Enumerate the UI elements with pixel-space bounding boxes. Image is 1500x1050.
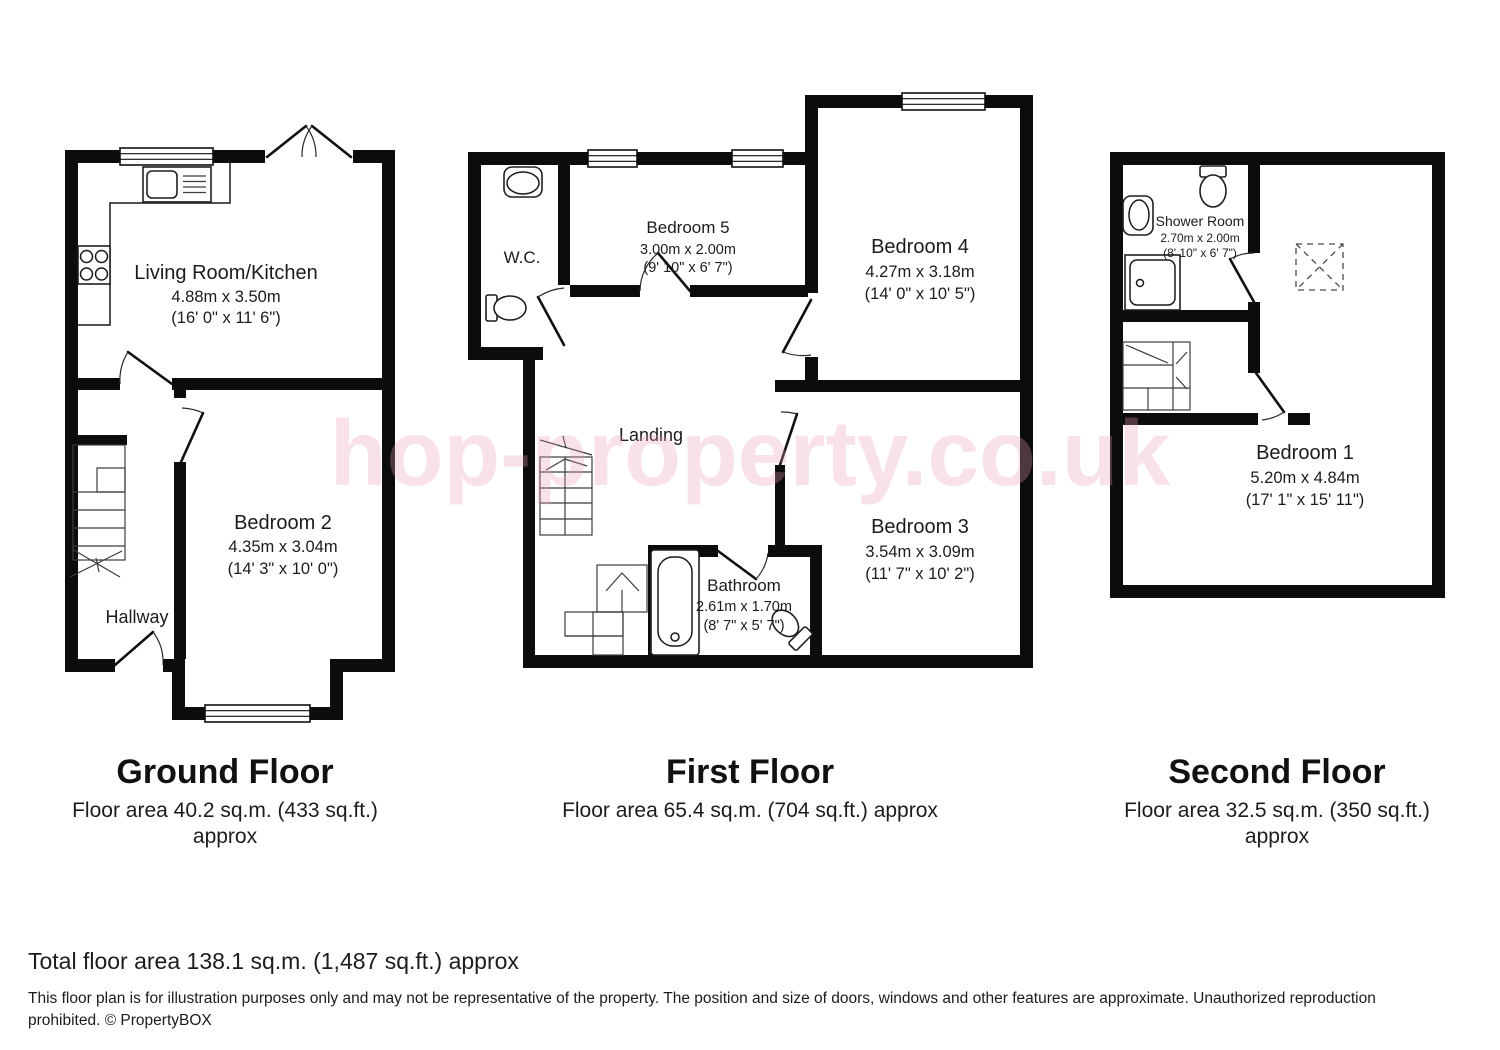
room-dims-metric: 4.88m x 3.50m: [171, 288, 280, 306]
room-label-bathroom: Bathroom: [707, 576, 781, 595]
toilet-icon: [486, 295, 526, 321]
room-dims-imperial: (16' 0" x 11' 6"): [171, 309, 280, 327]
first-floor-caption: First Floor Floor area 65.4 sq.m. (704 s…: [450, 753, 1050, 824]
door-icon: [783, 300, 811, 356]
door-icon: [120, 352, 172, 384]
skylight-icon: [1296, 244, 1343, 290]
sink-icon: [504, 167, 542, 197]
room-label-shower-room: Shower Room: [1156, 213, 1245, 229]
room-dims-metric: 4.35m x 3.04m: [228, 538, 337, 556]
floor-title-second: Second Floor: [1077, 753, 1477, 792]
window-icon: [588, 150, 637, 167]
room-dims-imperial: (17' 1" x 15' 11"): [1246, 491, 1365, 509]
french-door-icon: [267, 126, 351, 157]
floor-area-first: Floor area 65.4 sq.m. (704 sq.ft.) appro…: [450, 798, 1050, 824]
floor-area-ground-approx: approx: [25, 824, 425, 850]
shower-tray-icon: [1125, 255, 1180, 310]
room-dims-metric: 5.20m x 4.84m: [1250, 469, 1359, 487]
floorplan-drawing: Living Room/Kitchen 4.88m x 3.50m (16' 0…: [0, 0, 1500, 750]
room-dims-metric: 4.27m x 3.18m: [865, 263, 974, 281]
room-label-bedroom5: Bedroom 5: [646, 218, 729, 237]
room-label-living-kitchen: Living Room/Kitchen: [134, 262, 317, 284]
room-label-landing: Landing: [619, 425, 683, 445]
room-dims-imperial: (8' 7" x 5' 7"): [703, 618, 784, 634]
ground-walls: [65, 150, 395, 720]
door-icon: [538, 288, 564, 345]
window-icon: [732, 150, 783, 167]
floor-area-ground: Floor area 40.2 sq.m. (433 sq.ft.): [25, 798, 425, 824]
room-dims-imperial: (11' 7" x 10' 2"): [865, 565, 974, 583]
room-dims-imperial: (8' 10" x 6' 7"): [1163, 246, 1237, 260]
second-floor-caption: Second Floor Floor area 32.5 sq.m. (350 …: [1077, 753, 1477, 851]
stairs-icon: [1123, 342, 1190, 410]
room-label-hallway: Hallway: [105, 607, 168, 627]
stairs-icon: [540, 436, 647, 655]
room-label-wc: W.C.: [504, 248, 541, 267]
room-label-bedroom1: Bedroom 1: [1256, 442, 1354, 464]
room-dims-metric: 2.70m x 2.00m: [1160, 231, 1239, 245]
door-icon: [1256, 373, 1284, 420]
room-label-bedroom4: Bedroom 4: [871, 236, 969, 258]
room-dims-imperial: (14' 3" x 10' 0"): [228, 560, 339, 578]
window-icon: [902, 93, 985, 110]
room-dims-imperial: (14' 0" x 10' 5"): [865, 285, 976, 303]
kitchen-sink-icon: [143, 167, 211, 202]
bathtub-icon: [651, 550, 699, 655]
front-door-icon: [115, 632, 163, 665]
ground-floor-plan: Living Room/Kitchen 4.88m x 3.50m (16' 0…: [65, 126, 395, 722]
second-floor-plan: Shower Room 2.70m x 2.00m (8' 10" x 6' 7…: [1110, 152, 1445, 598]
door-icon: [181, 408, 203, 462]
stairs-icon: [70, 445, 125, 577]
room-dims-imperial: (9' 10" x 6' 7"): [643, 260, 732, 276]
first-floor-plan: W.C. Bedroom 5 3.00m x 2.00m (9' 10" x 6…: [468, 93, 1033, 668]
room-label-bedroom3: Bedroom 3: [871, 516, 969, 538]
disclaimer: This floor plan is for illustration purp…: [28, 988, 1420, 1033]
floor-area-second: Floor area 32.5 sq.m. (350 sq.ft.): [1077, 798, 1477, 824]
floorplan-page: { "watermark": "hop-property.co.uk", "fl…: [0, 0, 1500, 1050]
hob-icon: [78, 246, 110, 284]
toilet-icon: [1200, 166, 1226, 207]
ground-floor-caption: Ground Floor Floor area 40.2 sq.m. (433 …: [25, 753, 425, 851]
door-icon: [1230, 253, 1254, 302]
window-icon: [120, 148, 213, 165]
room-label-bedroom2: Bedroom 2: [234, 512, 332, 534]
sink-icon: [1123, 196, 1153, 235]
room-dims-metric: 2.61m x 1.70m: [696, 599, 792, 615]
window-icon: [205, 705, 310, 722]
total-floor-area: Total floor area 138.1 sq.m. (1,487 sq.f…: [28, 948, 519, 975]
room-dims-metric: 3.54m x 3.09m: [865, 543, 974, 561]
floor-title-first: First Floor: [450, 753, 1050, 792]
room-dims-metric: 3.00m x 2.00m: [640, 242, 736, 258]
door-icon: [780, 412, 797, 465]
floor-area-second-approx: approx: [1077, 824, 1477, 850]
door-icon: [718, 551, 768, 579]
floor-title-ground: Ground Floor: [25, 753, 425, 792]
